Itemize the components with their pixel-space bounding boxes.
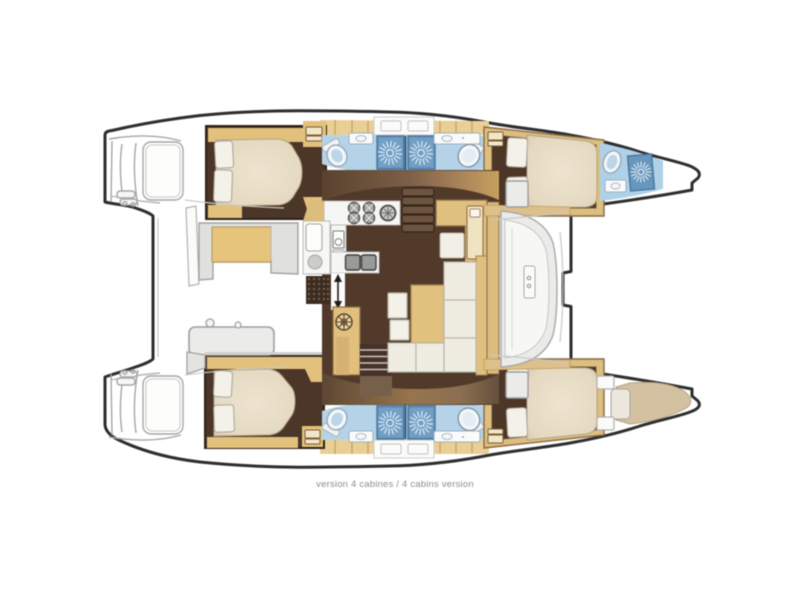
svg-text:version 4 cabines / 4 cabins v: version 4 cabines / 4 cabins version [316, 479, 474, 490]
